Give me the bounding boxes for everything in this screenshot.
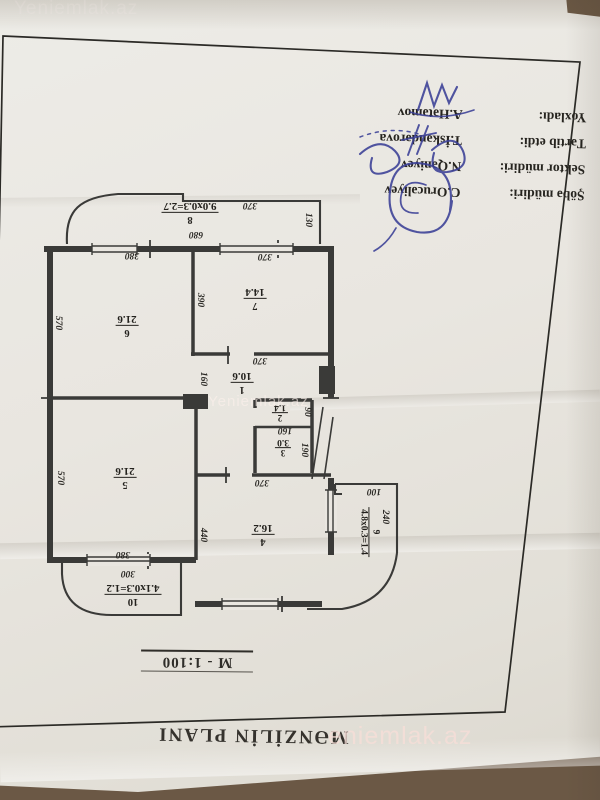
dim-label: 90 bbox=[302, 407, 312, 417]
room-label-4: 4 16.2 bbox=[251, 521, 274, 547]
dim-label: 570 bbox=[53, 316, 63, 330]
room-label-10-balcony: 10 4.1x0.3=1.2 bbox=[104, 581, 161, 607]
dim-label: 160 bbox=[278, 425, 292, 435]
balconies bbox=[62, 194, 397, 615]
dim-label: 370 bbox=[243, 200, 257, 210]
dim-label: 380 bbox=[125, 250, 139, 260]
room-label-2: 2 1.4 bbox=[272, 401, 288, 423]
stamp-value: A.Hətəmov bbox=[398, 105, 463, 123]
plan-scale: M - 1:100 bbox=[141, 650, 253, 673]
dim-label: 440 bbox=[198, 528, 208, 542]
dim-label: 160 bbox=[198, 372, 208, 386]
room-label-7: 7 14.4 bbox=[243, 285, 266, 311]
floorplan-drawing bbox=[20, 170, 440, 660]
dim-label: 370 bbox=[255, 477, 269, 487]
entrance-door bbox=[312, 407, 333, 479]
paper-edge-shadow bbox=[0, 0, 600, 30]
stamp-value: T.İskəndərova bbox=[379, 130, 462, 148]
plan-title: MƏNZİLİN PLANI bbox=[148, 722, 358, 748]
dim-label: 130 bbox=[303, 213, 313, 227]
room-label-6: 6 21.6 bbox=[115, 312, 138, 338]
dim-label: 390 bbox=[195, 293, 205, 307]
dim-label: 570 bbox=[55, 471, 65, 485]
dim-label: 100 bbox=[367, 486, 381, 496]
stamp-label: Sektor müdiri: bbox=[467, 158, 585, 177]
photo-of-floor-plan-document: Şöbə müdiri: C.Orucəliyev Sektor müdiri:… bbox=[0, 0, 600, 800]
stamp-label: Tərtib etdi: bbox=[468, 132, 586, 151]
room-label-5: 5 21.6 bbox=[113, 464, 136, 490]
dim-label: 380 bbox=[116, 549, 130, 559]
room-label-9-balcony: 9 4.8x0.3=1.4 bbox=[358, 507, 381, 557]
room-label-3: 3 3.0 bbox=[275, 436, 291, 458]
dim-label: 300 bbox=[121, 568, 135, 578]
dim-label: 370 bbox=[258, 251, 272, 261]
dim-label: 370 bbox=[253, 355, 267, 365]
dim-label: 190 bbox=[299, 443, 309, 457]
stamp-row: Yoxladı: A.Hətəmov bbox=[318, 103, 586, 126]
dim-label: 240 bbox=[380, 510, 390, 524]
dim-label: 680 bbox=[189, 229, 203, 239]
room-label-8-balcony: 8 9.0x0.3=2.7 bbox=[161, 199, 218, 225]
room-label-1: 1 10.6 bbox=[230, 369, 253, 395]
stamp-label: Şöbə müdiri: bbox=[466, 184, 584, 203]
stamp-row: Tərtib etdi: T.İskəndərova bbox=[318, 128, 586, 151]
stamp-label: Yoxladı: bbox=[468, 106, 586, 125]
floor-plan: 380 370 680 370 130 570 390 370 160 370 … bbox=[20, 170, 440, 660]
